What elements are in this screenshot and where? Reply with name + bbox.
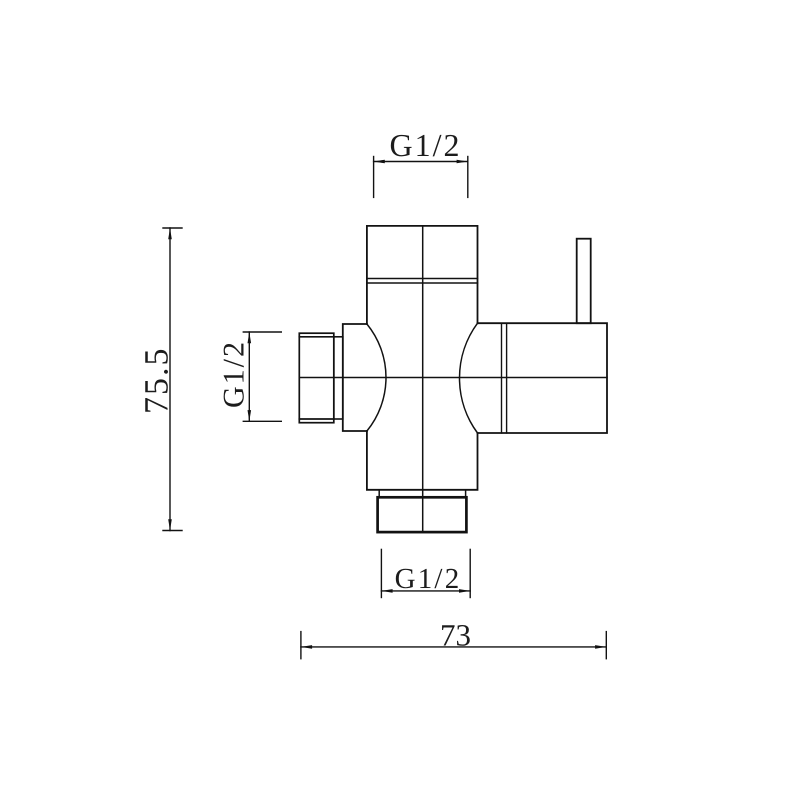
svg-text:G1/2: G1/2 <box>390 127 462 163</box>
svg-text:G1/2: G1/2 <box>218 340 251 408</box>
